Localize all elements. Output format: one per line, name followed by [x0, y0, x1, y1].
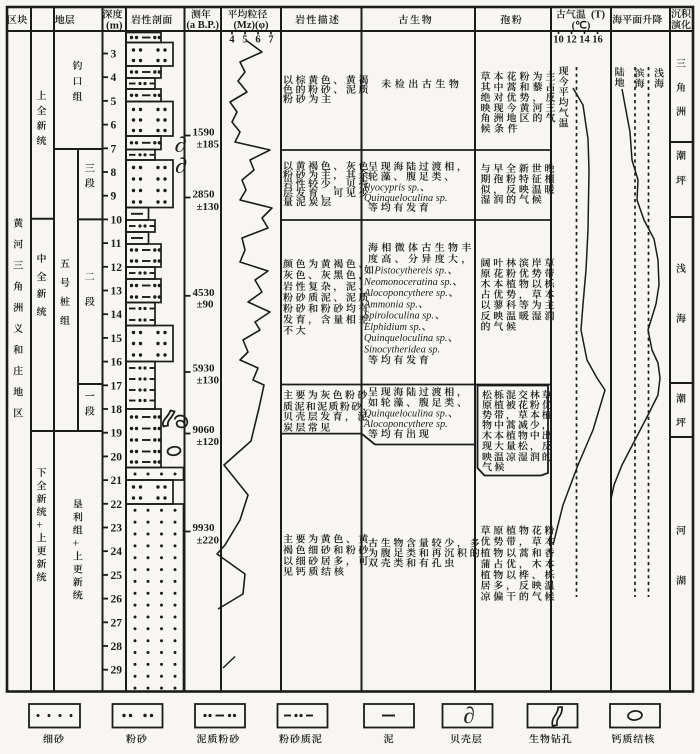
svg-text:Alocoponcythere sp.: Alocoponcythere sp. — [363, 288, 448, 299]
svg-text:16: 16 — [111, 357, 123, 369]
svg-text:16: 16 — [592, 35, 603, 46]
svg-text:5: 5 — [111, 96, 117, 108]
svg-text:5: 5 — [242, 35, 247, 46]
svg-text:(℃): (℃) — [572, 20, 591, 32]
svg-text:13: 13 — [111, 286, 123, 298]
svg-text:21: 21 — [111, 475, 123, 487]
svg-text:15: 15 — [111, 333, 123, 345]
svg-text:Quinqueloculina sp.: Quinqueloculina sp. — [364, 193, 448, 204]
svg-text:(m): (m) — [106, 20, 123, 32]
svg-text:3: 3 — [111, 49, 117, 61]
svg-text:4530: 4530 — [193, 287, 216, 299]
svg-text:4: 4 — [111, 72, 117, 84]
svg-text:12: 12 — [111, 262, 123, 274]
svg-text:1590: 1590 — [193, 126, 216, 138]
svg-text:(Mz)(φ): (Mz)(φ) — [233, 20, 269, 31]
svg-text:20: 20 — [111, 451, 123, 463]
svg-text:22: 22 — [111, 499, 123, 511]
svg-text:Ilyocypris sp.: Ilyocypris sp. — [363, 183, 419, 194]
svg-text:29: 29 — [111, 665, 123, 677]
svg-text:7: 7 — [111, 143, 117, 155]
svg-text:27: 27 — [111, 617, 123, 629]
svg-text:8: 8 — [111, 167, 117, 179]
svg-text:6: 6 — [111, 120, 117, 132]
svg-text:±220: ±220 — [197, 534, 220, 546]
svg-text:24: 24 — [111, 546, 123, 558]
svg-text:14: 14 — [579, 35, 590, 46]
svg-text:±120: ±120 — [197, 436, 220, 448]
svg-text:Spiroloculina sp.: Spiroloculina sp. — [364, 311, 434, 322]
svg-text:±130: ±130 — [197, 201, 220, 213]
svg-text:17: 17 — [111, 380, 123, 392]
svg-text:7: 7 — [268, 35, 273, 46]
svg-text:4: 4 — [229, 35, 235, 46]
svg-text:Quinqueloculina sp.: Quinqueloculina sp. — [364, 409, 448, 420]
svg-text:26: 26 — [111, 594, 123, 606]
svg-text:18: 18 — [111, 404, 123, 416]
svg-text:23: 23 — [111, 523, 123, 535]
svg-text:±90: ±90 — [197, 298, 215, 310]
svg-text:Ammonia sp.: Ammonia sp. — [363, 299, 418, 310]
svg-text:Quinqueloculina sp.: Quinqueloculina sp. — [364, 333, 448, 344]
svg-text:10: 10 — [553, 35, 564, 46]
svg-text:6: 6 — [255, 35, 260, 46]
svg-text:14: 14 — [111, 309, 123, 321]
svg-text:9930: 9930 — [193, 522, 216, 534]
svg-text:12: 12 — [566, 35, 577, 46]
svg-text:(a B.P.): (a B.P.) — [186, 20, 219, 31]
svg-text:±130: ±130 — [197, 374, 220, 386]
svg-text:Sinocytheridea sp.: Sinocytheridea sp. — [364, 344, 440, 355]
svg-text:∂: ∂ — [463, 703, 474, 728]
svg-text:±185: ±185 — [197, 138, 220, 150]
svg-text:11: 11 — [111, 238, 122, 250]
svg-text:Alocoponcythere sp.: Alocoponcythere sp. — [363, 419, 448, 430]
svg-text:9060: 9060 — [193, 424, 216, 436]
svg-text:Elphidium sp.: Elphidium sp. — [363, 322, 421, 333]
svg-text:28: 28 — [111, 641, 123, 653]
svg-text:5930: 5930 — [193, 362, 216, 374]
svg-text:25: 25 — [111, 570, 123, 582]
svg-text:Neomonoceratina sp.: Neomonoceratina sp. — [363, 277, 452, 288]
svg-text:Pistocythereis sp.: Pistocythereis sp. — [373, 266, 446, 277]
svg-text:19: 19 — [111, 428, 123, 440]
svg-text:(T): (T) — [591, 10, 606, 21]
svg-text:2850: 2850 — [193, 188, 216, 200]
svg-text:9: 9 — [111, 191, 117, 203]
svg-text:10: 10 — [111, 214, 123, 226]
